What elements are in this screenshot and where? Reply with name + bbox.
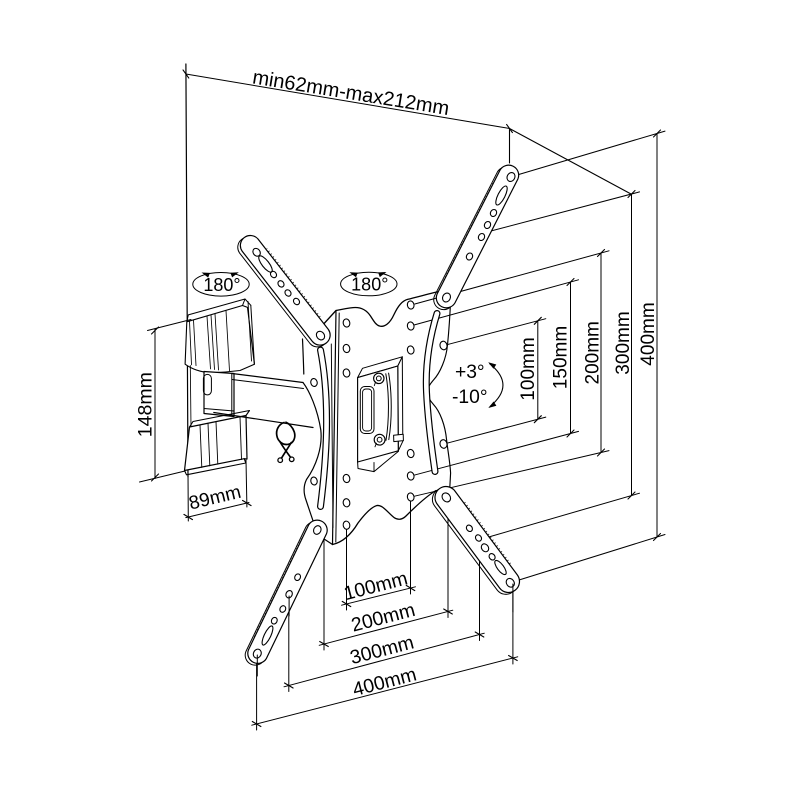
svg-text:180°: 180° — [351, 275, 388, 295]
svg-text:+3°: +3° — [455, 362, 485, 383]
svg-text:200mm: 200mm — [583, 321, 604, 384]
svg-text:180°: 180° — [203, 275, 240, 295]
svg-text:-10°: -10° — [452, 387, 488, 408]
svg-text:300mm: 300mm — [613, 311, 634, 374]
svg-text:100mm: 100mm — [518, 337, 539, 400]
svg-text:148mm: 148mm — [134, 372, 156, 437]
svg-text:400mm: 400mm — [638, 302, 659, 365]
svg-text:150mm: 150mm — [550, 326, 571, 389]
